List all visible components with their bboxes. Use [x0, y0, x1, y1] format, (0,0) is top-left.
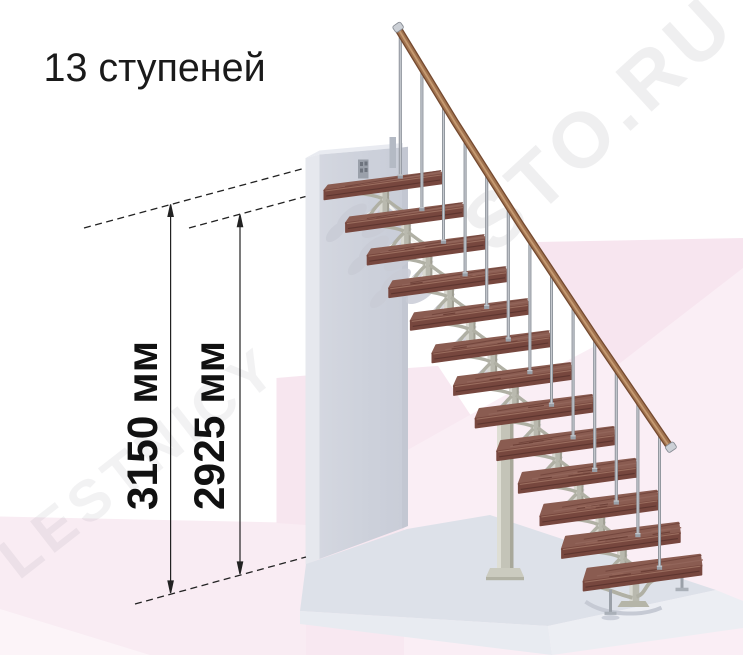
- svg-text:13 ступеней: 13 ступеней: [44, 46, 266, 90]
- svg-text:3150 мм: 3150 мм: [120, 341, 167, 510]
- svg-text:2925 мм: 2925 мм: [187, 341, 234, 510]
